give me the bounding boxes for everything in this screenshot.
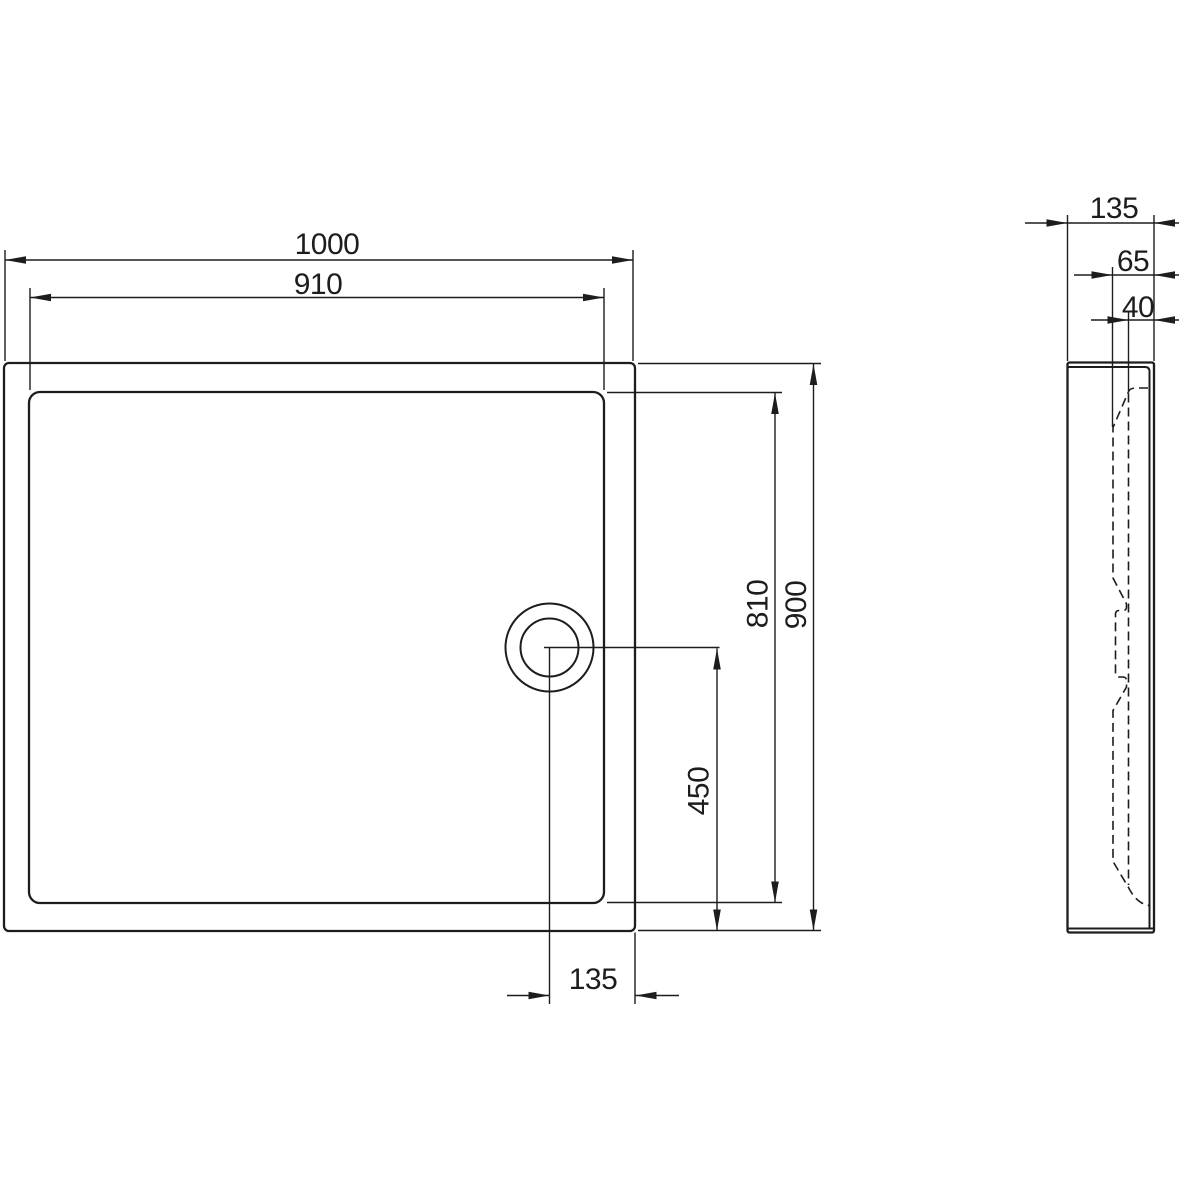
shower-tray-technical-drawing: 1000 910 900 810 450 135 (0, 0, 1200, 1200)
dim-label-inner-width: 910 (294, 268, 343, 301)
technical-drawing-page: 1000 910 900 810 450 135 (0, 0, 1200, 1200)
dim-label-side-rim-offset: 65 (1117, 245, 1149, 278)
dim-label-drain-from-bottom: 450 (683, 767, 716, 816)
dim-label-outer-height: 900 (780, 581, 813, 630)
dim-label-drain-from-right-edge: 135 (569, 963, 618, 996)
dim-label-side-depth: 135 (1090, 192, 1139, 225)
drawing-background (0, 0, 1200, 1200)
dim-label-inner-height: 810 (742, 580, 775, 629)
dim-label-side-wall-offset: 40 (1122, 291, 1154, 324)
dim-label-outer-width: 1000 (295, 228, 360, 261)
